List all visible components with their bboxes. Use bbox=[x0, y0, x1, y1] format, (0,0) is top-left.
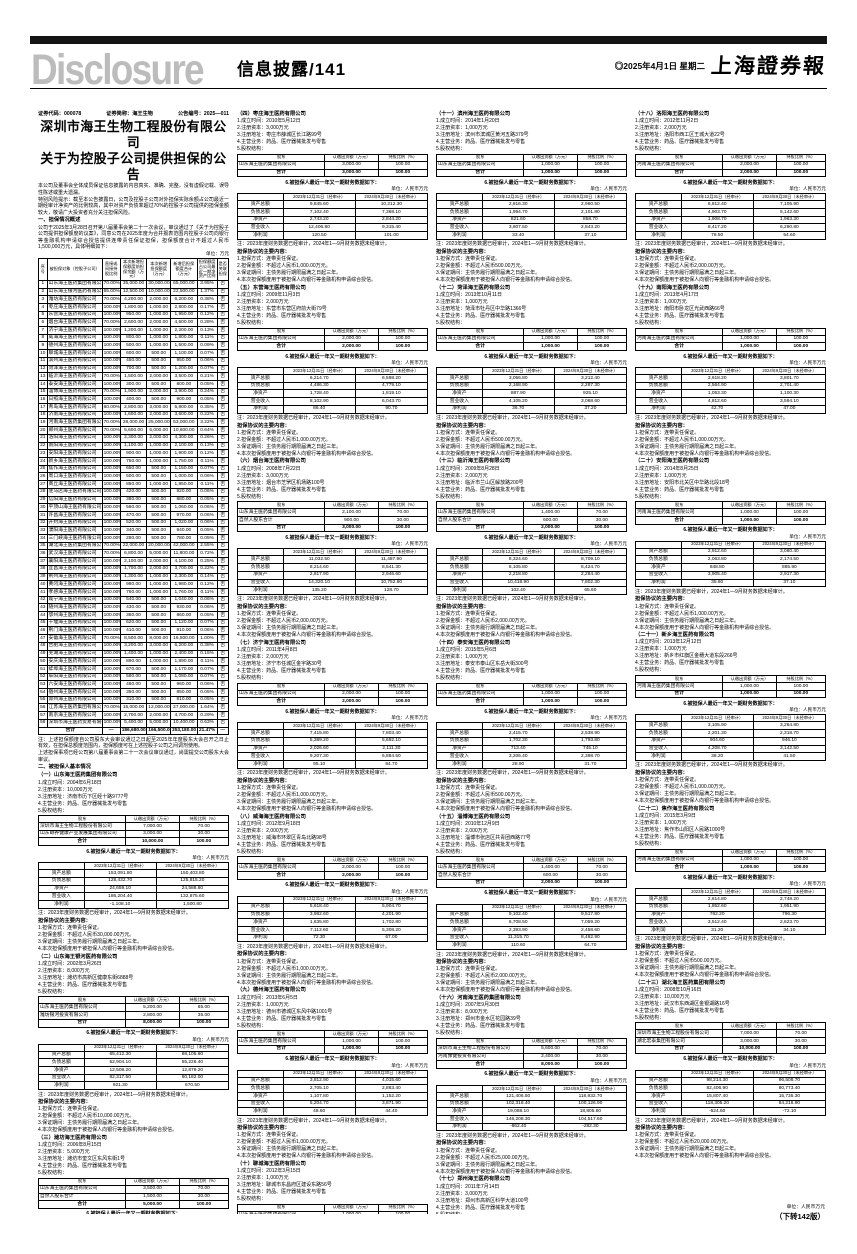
table-cell: 12,500.00 bbox=[120, 288, 147, 296]
table-cell: 280.00 bbox=[120, 535, 147, 543]
table-cell: 河南海王医药集团有限公司 bbox=[47, 419, 102, 427]
table-cell: 100.00% bbox=[102, 434, 120, 442]
subsidiary-section: （九）德州海王医药有限公司1.成立时间：2013年6月5日2.注册资本：1,00… bbox=[237, 987, 428, 1160]
table-cell: 山东海王医药集团有限公司 bbox=[238, 1038, 325, 1046]
table-header-row: 股东认缴出资额（万元）持股比例（%） bbox=[437, 154, 627, 161]
audit-note: 注：2023年度财务数据已经审计，2024年1—9月财务数据未经审计。 bbox=[436, 952, 627, 959]
table-cell: 资产总额 bbox=[39, 870, 85, 878]
table-cell: 100.00% bbox=[102, 573, 120, 581]
table-header-row: 股东认缴出资额（万元）持股比例（%） bbox=[238, 683, 428, 690]
table-cell: 100.00% bbox=[102, 596, 120, 604]
table-cell: 100.00 bbox=[776, 856, 825, 864]
subsidiary-name-heading: （二十）安阳海王医药有限公司 bbox=[635, 458, 826, 465]
table-cell: 9 bbox=[39, 342, 48, 350]
table-total-row: 合计8,000.00100.00 bbox=[39, 1019, 229, 1027]
table-cell: 净资产 bbox=[39, 885, 85, 893]
table-cell: 6,200.00 bbox=[171, 642, 198, 650]
table-cell: 德州海王医药有限公司 bbox=[47, 342, 102, 350]
table-cell: 湖北海王医药集团有限公司 bbox=[47, 542, 102, 550]
table-header-cell: 股东 bbox=[636, 502, 723, 509]
table-cell: 15,807.40 bbox=[681, 1092, 753, 1100]
table-cell: 90.70 bbox=[355, 405, 427, 413]
table-cell: 5,000.00 bbox=[147, 719, 171, 727]
page-footer: 单位：人民币万元 （下转142版） bbox=[771, 1203, 825, 1222]
table-header-cell: 2023年12月31日（经审计） bbox=[482, 1085, 554, 1092]
table-cell: 净利润 bbox=[636, 753, 682, 761]
table-cell: 2,000.00 bbox=[147, 319, 171, 327]
table-header-cell: 认缴出资额（万元） bbox=[723, 502, 776, 509]
subsidiary-section: （十七）郑州海王医药有限公司1.成立时间：2011年7月14日2.注册资本：3,… bbox=[436, 1176, 627, 1214]
table-cell: 100.00 bbox=[577, 169, 626, 177]
table-cell: 2,817.90 bbox=[283, 571, 355, 579]
table-row: 潍坊银河投资有限公司2,800.0035.00 bbox=[39, 1012, 229, 1020]
table-cell: 350.00 bbox=[120, 689, 147, 697]
table-row: 山东海王医药集团有限公司2,000.00100.00 bbox=[238, 864, 428, 872]
table-header-cell: 股东 bbox=[238, 857, 325, 864]
table-cell: 净资产 bbox=[636, 216, 682, 224]
table-total-row: 合计2,000.00100.00 bbox=[437, 879, 627, 887]
table-cell: 2,946.60 bbox=[355, 571, 427, 579]
table-cell: 128.70 bbox=[355, 587, 427, 595]
table-cell: 353,180.00 bbox=[171, 727, 198, 735]
table-cell: 8,000.00 bbox=[126, 1019, 179, 1027]
table-cell: 荆门海王医药有限公司 bbox=[47, 627, 102, 635]
table-cell: 100.00 bbox=[378, 1211, 427, 1214]
table-cell: 净利润 bbox=[437, 232, 483, 240]
table-row: 营业收入3,905.402,917.30 bbox=[636, 571, 826, 579]
table-row: 净资产2,026.602,111.30 bbox=[238, 745, 428, 753]
table-cell: 37.10 bbox=[753, 579, 825, 587]
table-cell: 24 bbox=[39, 457, 48, 465]
table-cell: 资产总额 bbox=[437, 556, 483, 564]
subsidiary-info-line: 2.注册资本：2,000万元 bbox=[237, 828, 428, 835]
table-cell: 980.00 bbox=[120, 581, 147, 589]
table-header-cell: 2023年12月31日（经审计） bbox=[482, 549, 554, 556]
table-cell: 威海海王医药有限公司 bbox=[47, 334, 102, 342]
table-header-cell: 认缴出资额（万元） bbox=[524, 328, 577, 335]
subsidiary-info-line: 3.注册地址：菏泽市牡丹区中华路1366号 bbox=[436, 306, 627, 313]
table-cell: 3,060.40 bbox=[753, 548, 825, 556]
table-cell: 7,803.40 bbox=[355, 730, 427, 738]
subsidiary-name-heading: （九）德州海王医药有限公司 bbox=[237, 987, 428, 994]
table-header-cell: 2024年9月30日（未经审计） bbox=[156, 1044, 228, 1051]
table-cell: — bbox=[102, 727, 120, 735]
table-header-cell: 股东 bbox=[39, 1178, 126, 1185]
table-cell: 资产总额 bbox=[636, 722, 682, 730]
table-header-cell: 股东 bbox=[636, 675, 723, 682]
table-cell: 3,000.00 bbox=[147, 404, 171, 412]
table-cell: 2,917.30 bbox=[753, 571, 825, 579]
table-cell: 100.00% bbox=[102, 604, 120, 612]
table-header-cell: 2023年12月31日（经审计） bbox=[482, 723, 554, 730]
subsidiary-info-line: 2.注册资本：10,000万元 bbox=[38, 787, 229, 794]
table-cell: 0.05% bbox=[197, 396, 217, 404]
table-cell: 1,000.00 bbox=[147, 573, 171, 581]
table-cell: 310.00 bbox=[120, 696, 147, 704]
table-cell: 8,324.60 bbox=[482, 556, 554, 564]
table-cell: 84.70 bbox=[355, 760, 427, 768]
table-cell: 潍坊银河投资有限公司 bbox=[39, 1012, 126, 1020]
subsidiary-section: （十二）菏泽海王医药有限公司1.成立时间：2013年10月11日2.注册资本：1… bbox=[436, 285, 627, 458]
table-row: 净利润33.4037.10 bbox=[437, 232, 627, 240]
table-cell: 8,102.90 bbox=[283, 398, 355, 406]
table-cell: 资产总额 bbox=[238, 375, 284, 383]
table-cell: 6 bbox=[39, 319, 48, 327]
table-cell: 合计 bbox=[437, 698, 524, 706]
guarantee-term-line: 2.担保金额：不超过人民币10,000.00万元。 bbox=[38, 1113, 229, 1120]
table-cell: 28,000.00 bbox=[120, 419, 147, 427]
table-cell: 净资产 bbox=[437, 1108, 483, 1116]
table-row: 资产总额9,845.6010,212.30 bbox=[238, 201, 428, 209]
table-cell: 8,709.10 bbox=[554, 556, 626, 564]
table-cell: 100.00% bbox=[102, 396, 120, 404]
table-cell: 否 bbox=[217, 712, 228, 720]
unit-label: 单位：人民币万元 bbox=[38, 855, 229, 861]
table-cell: 100.00% bbox=[102, 642, 120, 650]
table-cell: 100.00 bbox=[776, 343, 825, 351]
table-cell: 襄阳海王医药有限公司 bbox=[47, 558, 102, 566]
table-cell: 营业收入 bbox=[636, 1100, 682, 1108]
guarantee-term-line: 4.本次担保额度用于被担保人向银行等金融机构申请综合授信。 bbox=[237, 451, 428, 458]
guarantee-term-line: 3.保证期间：主债务履行期限届满之日起三年。 bbox=[635, 791, 826, 798]
financials-intro: 6.被担保人最近一年又一期财务数据如下： bbox=[436, 708, 627, 715]
subsidiary-info-line: 1.成立时间：2006年8月15日 bbox=[38, 1142, 229, 1149]
table-cell: 7,368.10 bbox=[355, 209, 427, 217]
table-cell: 否 bbox=[217, 327, 228, 335]
table-cell: 19,088.10 bbox=[482, 1108, 554, 1116]
table-cell: 4,100.00 bbox=[171, 558, 198, 566]
table-cell: 资产总额 bbox=[238, 730, 284, 738]
table-row: 55滁州海王医药有限公司100.00%310.00500.00810.000.0… bbox=[39, 696, 229, 704]
table-row: 34三门峡海王医药有限公司100.00%280.00500.00780.000.… bbox=[39, 535, 229, 543]
table-cell: 620.00 bbox=[120, 619, 147, 627]
table-cell: 100.00% bbox=[102, 588, 120, 596]
shareholder-table: 股东认缴出资额（万元）持股比例（%）山东海王医药集团有限公司1,000.0010… bbox=[237, 1030, 428, 1053]
table-header-row: 2023年12月31日（经审计）2024年9月30日（未经审计） bbox=[636, 1070, 826, 1077]
table-cell: 2,844.20 bbox=[355, 216, 427, 224]
table-cell: 100.00% bbox=[102, 681, 120, 689]
table-header-cell: 股东 bbox=[39, 997, 126, 1004]
table-row: 负债总额2,705.102,863.40 bbox=[238, 1085, 428, 1093]
table-cell: 0.29% bbox=[197, 712, 217, 720]
subsidiary-info-line: 1.成立时间：2012年9月18日 bbox=[237, 821, 428, 828]
table-cell: 1,852.60 bbox=[681, 903, 753, 911]
table-cell: 周口海王医药有限公司 bbox=[47, 473, 102, 481]
table-row: 31许昌海王医药有限公司100.00%470.00500.00970.000.0… bbox=[39, 511, 229, 519]
table-header-cell bbox=[636, 541, 682, 548]
shareholder-table: 股东认缴出资额（万元）持股比例（%）山东海王医药集团有限公司2,000.0010… bbox=[237, 328, 428, 351]
table-cell: 8,417.20 bbox=[681, 224, 753, 232]
table-cell: 31.20 bbox=[681, 926, 753, 934]
table-cell: 安徽海王医药有限公司 bbox=[47, 635, 102, 643]
subsidiary-info-line: 4.主营业务：药品、医疗器械批发与零售 bbox=[436, 139, 627, 146]
table-header-cell: 担保额度占公司最近一期净资产比例 bbox=[197, 259, 217, 281]
table-cell: 净资产 bbox=[636, 390, 682, 398]
table-cell: 20,000.00 bbox=[147, 542, 171, 550]
table-row: 净资产15,807.4015,735.30 bbox=[636, 1092, 826, 1100]
table-cell: 33.40 bbox=[482, 232, 554, 240]
table-cell: 0.09% bbox=[197, 342, 217, 350]
table-row: 净资产848.80885.90 bbox=[636, 564, 826, 572]
table-cell: 36 bbox=[39, 550, 48, 558]
table-cell: 64.70 bbox=[554, 942, 626, 950]
table-cell: 5,600.00 bbox=[120, 427, 147, 435]
table-cell: 24,659.10 bbox=[84, 885, 156, 893]
audit-note: 注：2023年度财务数据已经审计，2024年1—9月财务数据未经审计。 bbox=[38, 910, 229, 917]
table-cell: 100.00 bbox=[776, 1045, 825, 1053]
guarantee-term-line: 1.担保方式：连带责任保证。 bbox=[635, 777, 826, 784]
table-cell: 3,871.90 bbox=[355, 1100, 427, 1108]
table-cell: 8,214.60 bbox=[283, 564, 355, 572]
table-cell: 合计 bbox=[636, 169, 723, 177]
intro-paragraph: 特别风险提示：截至本公告披露日，公司及控股子公司对外担保实际余额占公司最近一期经… bbox=[38, 197, 229, 217]
shareholder-table: 股东认缴出资额（万元）持股比例（%）山东海王医药集团有限公司3,500.0070… bbox=[38, 1178, 229, 1209]
table-cell: 1,800.00 bbox=[120, 303, 147, 311]
audit-note: 注：2023年度财务数据已经审计，2024年1—9月财务数据未经审计。 bbox=[38, 1092, 229, 1099]
subsidiary-info-line: 1.成立时间：2012年11月2日 bbox=[635, 118, 826, 125]
table-cell: 蚌埠海王医药有限公司 bbox=[47, 665, 102, 673]
table-row: 36武汉海王医药有限公司70.00%6,800.005,000.0011,800… bbox=[39, 550, 229, 558]
table-cell: 1,635.80 bbox=[283, 919, 355, 927]
table-row: 24新乡海王医药有限公司100.00%750.001,000.001,750.0… bbox=[39, 457, 229, 465]
guarantee-term-line: 3.保证期间：主债务履行期限届满之日起三年。 bbox=[38, 939, 229, 946]
subsidiary-name-heading: （二十二）焦作海王医药有限公司 bbox=[635, 806, 826, 813]
table-cell: 0.22% bbox=[197, 565, 217, 573]
terms-heading: 担保协议的主要内容： bbox=[436, 959, 627, 966]
table-cell: 鄂州海王医药有限公司 bbox=[47, 612, 102, 620]
table-row: 资产总额98,214.3096,508.70 bbox=[636, 1077, 826, 1085]
table-row: 净利润28.9031.70 bbox=[437, 760, 627, 768]
table-cell: 4,812.60 bbox=[681, 398, 753, 406]
table-cell: 29 bbox=[39, 496, 48, 504]
unit-label: 单位：人民币万元 bbox=[436, 186, 627, 192]
table-cell: 净资产 bbox=[238, 1092, 284, 1100]
table-cell: 5,904.70 bbox=[355, 903, 427, 911]
table-cell: 否 bbox=[217, 658, 228, 666]
table-header-cell: 被担保对象（控股子公司） bbox=[47, 259, 102, 281]
table-header-cell: 股东 bbox=[437, 154, 524, 161]
table-cell: 27 bbox=[39, 481, 48, 489]
subsidiary-info-line: 2.注册资本：1,000万元 bbox=[436, 125, 627, 132]
table-cell: 22,000.00 bbox=[120, 542, 147, 550]
table-header-cell bbox=[437, 194, 483, 201]
guarantee-term-line: 3.保证期间：主债务履行期限届满之日起三年。 bbox=[635, 965, 826, 972]
shareholder-table: 股东认缴出资额（万元）持股比例（%）山东海王医药集团有限公司2,000.0010… bbox=[237, 856, 428, 879]
table-cell: 河南海王医药集团有限公司 bbox=[636, 161, 723, 169]
financial-table: 2023年12月31日（经审计）2024年9月30日（未经审计）资产总额153,… bbox=[38, 862, 229, 909]
table-header-cell bbox=[238, 368, 284, 375]
subsidiary-info-line: 2.注册资本：3,000万元 bbox=[237, 473, 428, 480]
table-cell: 70.00% bbox=[102, 635, 120, 643]
table-row: 净资产887.90925.10 bbox=[437, 390, 627, 398]
table-cell: 100.00 bbox=[179, 1201, 228, 1209]
table-header-cell: 持股比例（%） bbox=[776, 675, 825, 682]
table-total-row: 合计3,000.00100.00 bbox=[238, 169, 428, 177]
guarantee-term-line: 1.担保方式：连带责任保证。 bbox=[635, 604, 826, 611]
table-cell: 否 bbox=[217, 519, 228, 527]
table-row: 净资产2,743.202,844.20 bbox=[238, 216, 428, 224]
table-cell: 0.13% bbox=[197, 327, 217, 335]
shareholder-table: 股东认缴出资额（万元）持股比例（%）河南海王医药集团有限公司1,000.0010… bbox=[635, 501, 826, 524]
subsidiary-info-line: 4.主营业务：药品、医疗器械批发与零售 bbox=[38, 801, 229, 808]
table-header-cell: 是否关联担保 bbox=[217, 259, 228, 281]
announcement-code-line: 证券代码：000078 证券简称：海王生物 公告编号：2025—011 bbox=[38, 110, 229, 117]
table-cell: 菏泽海王医药有限公司 bbox=[47, 365, 102, 373]
column-1: 证券代码：000078 证券简称：海王生物 公告编号：2025—011 深圳市海… bbox=[38, 110, 229, 1214]
table-cell: 资产总额 bbox=[437, 730, 483, 738]
table-row: 资产总额2,415.702,538.90 bbox=[437, 730, 627, 738]
guarantee-term-line: 2.担保金额：不超过人民币1,000.00万元。 bbox=[635, 437, 826, 444]
table-cell: 100.00% bbox=[102, 327, 120, 335]
table-header-cell: 持股比例（%） bbox=[179, 997, 228, 1004]
table-row: 52阜阳海王医药有限公司100.00%580.00500.001,080.000… bbox=[39, 673, 229, 681]
table-cell: 300.00 bbox=[120, 380, 147, 388]
subsidiaries-heading: 二、被担保人基本情况 bbox=[38, 764, 229, 771]
table-row: 42咸宁海王医药有限公司100.00%540.00500.001,040.000… bbox=[39, 596, 229, 604]
table-header-row: 2023年12月31日（经审计）2024年9月30日（未经审计） bbox=[636, 889, 826, 896]
table-cell: 营业收入 bbox=[437, 398, 483, 406]
subsidiary-info-line: 3.注册地址：武汉市东西湖区金银湖路16号 bbox=[635, 1001, 826, 1008]
table-cell: 否 bbox=[217, 673, 228, 681]
table-row: 净利润-1,108.101,500.80 bbox=[39, 901, 229, 909]
subsidiary-name-heading: （十三）临沂海王医药有限公司 bbox=[436, 458, 627, 465]
table-cell: 1,000.00 bbox=[147, 457, 171, 465]
subsidiary-info-line: 5.股权结构： bbox=[436, 675, 627, 682]
table-cell: 否 bbox=[217, 473, 228, 481]
table-cell: 净利润 bbox=[636, 405, 682, 413]
subsidiary-info-line: 2.注册资本：1,000万元 bbox=[635, 299, 826, 306]
table-cell: 合计 bbox=[437, 1061, 524, 1069]
table-cell: 858.70 bbox=[554, 216, 626, 224]
unit-label: 单位：人民币万元 bbox=[436, 541, 627, 547]
table-cell: 1,000.00 bbox=[723, 690, 776, 698]
table-cell: 500.00 bbox=[147, 627, 171, 635]
table-cell: 0.28% bbox=[197, 319, 217, 327]
table-cell: 净资产 bbox=[437, 745, 483, 753]
table-cell: 21 bbox=[39, 434, 48, 442]
table-cell: 净利润 bbox=[238, 934, 284, 942]
table-cell: 2,458.60 bbox=[554, 926, 626, 934]
table-header-cell: 2023年12月31日（经审计） bbox=[283, 1070, 355, 1077]
table-cell: 0.21% bbox=[197, 373, 217, 381]
table-cell: 100.00 bbox=[378, 690, 427, 698]
table-cell: 0.06% bbox=[197, 519, 217, 527]
table-cell: 否 bbox=[217, 681, 228, 689]
subsidiary-info-line: 1.成立时间：2013年10月11日 bbox=[436, 292, 627, 299]
table-cell: 100.00% bbox=[102, 712, 120, 720]
table-cell: 30.00 bbox=[179, 830, 228, 838]
guarantee-term-line: 3.保证期间：主债务履行期限届满之日起三年。 bbox=[436, 799, 627, 806]
table-row: 33濮阳海王医药有限公司100.00%340.00500.00840.000.0… bbox=[39, 527, 229, 535]
table-header-cell: 2023年12月31日（经审计） bbox=[84, 1044, 156, 1051]
table-header-cell: 认缴出资额（万元） bbox=[325, 1031, 378, 1038]
table-header-cell: 2023年12月31日（经审计） bbox=[283, 896, 355, 903]
audit-note: 注：2023年度财务数据已经审计，2024年1—9月财务数据未经审计。 bbox=[237, 596, 428, 603]
guarantee-term-line: 3.保证期间：主债务履行期限届满之日起三年。 bbox=[237, 973, 428, 980]
table-cell: 900.00 bbox=[325, 517, 378, 525]
table-row: 负债总额1,994.702,101.80 bbox=[437, 209, 627, 217]
table-cell: 500.00 bbox=[147, 673, 171, 681]
table-cell: 78.50 bbox=[681, 232, 753, 240]
table-cell: 850.00 bbox=[120, 481, 147, 489]
table-header-row: 2023年12月31日（经审计）2024年9月30日（未经审计） bbox=[238, 549, 428, 556]
table-cell: 开封海王医药有限公司 bbox=[47, 519, 102, 527]
table-header-cell: 股东 bbox=[39, 816, 126, 823]
subsidiary-info-line: 3.注册地址：安阳市北关区中华路北段18号 bbox=[635, 480, 826, 487]
table-cell: 净资产 bbox=[437, 926, 483, 934]
table-header-cell: 2024年9月30日（未经审计） bbox=[753, 541, 825, 548]
table-cell: 904.60 bbox=[681, 737, 753, 745]
table-cell: 负债总额 bbox=[238, 911, 284, 919]
table-cell: 否 bbox=[217, 350, 228, 358]
guarantee-term-line: 3.保证期间：主债务履行期限届满之日起三年。 bbox=[635, 1146, 826, 1153]
table-cell: 东营海王医药有限公司 bbox=[47, 311, 102, 319]
financials-intro: 6.被担保人最近一年又一期财务数据如下： bbox=[635, 353, 826, 360]
subsidiary-name-heading: （一）山东海王医药集团有限公司 bbox=[38, 772, 229, 779]
table-cell: 临沂海王医药有限公司 bbox=[47, 373, 102, 381]
table-cell: 否 bbox=[217, 373, 228, 381]
terms-heading: 担保协议的主要内容： bbox=[38, 918, 229, 925]
table-cell: 负债总额 bbox=[636, 382, 682, 390]
terms-heading: 担保协议的主要内容： bbox=[635, 1125, 826, 1132]
table-cell: 0.22% bbox=[197, 411, 217, 419]
table-cell: 70.00 bbox=[577, 1045, 626, 1053]
stock-code: 证券代码：000078 bbox=[38, 110, 81, 117]
table-cell: 负债总额 bbox=[437, 1100, 483, 1108]
table-row: 净利润95.1084.70 bbox=[238, 760, 428, 768]
table-cell: 3,068.60 bbox=[554, 398, 626, 406]
financial-table: 2023年12月31日（经审计）2024年9月30日（未经审计）资产总额9,84… bbox=[237, 193, 428, 240]
table-cell: 146,208.30 bbox=[482, 1116, 554, 1124]
table-cell: 6,800.00 bbox=[120, 550, 147, 558]
table-cell: 3,600.00 bbox=[171, 411, 198, 419]
table-header-cell: 股东 bbox=[437, 1038, 524, 1045]
table-cell: 10,000.00 bbox=[126, 838, 179, 846]
table-cell: 135.20 bbox=[283, 587, 355, 595]
table-cell: 910.00 bbox=[171, 627, 198, 635]
table-cell: 合计 bbox=[39, 1019, 126, 1027]
table-row: 负债总额5,389.205,692.10 bbox=[238, 737, 428, 745]
financial-table: 2023年12月31日（经审计）2024年9月30日（未经审计）资产总额5,61… bbox=[237, 896, 428, 943]
table-cell: 500.00 bbox=[147, 357, 171, 365]
table-cell: 850.00 bbox=[171, 689, 198, 697]
table-row: 资产总额6,214.706,598.20 bbox=[238, 375, 428, 383]
table-header-row: 2023年12月31日（经审计）2024年9月30日（未经审计） bbox=[437, 194, 627, 201]
table-cell: 100.00 bbox=[378, 335, 427, 343]
subsidiary-info-line: 5.股权结构： bbox=[436, 849, 627, 856]
guarantee-term-line: 1.担保方式：连带责任保证。 bbox=[38, 925, 229, 932]
table-cell: 25 bbox=[39, 465, 48, 473]
table-cell: 100.00% bbox=[102, 565, 120, 573]
table-cell: 2,600.00 bbox=[120, 319, 147, 327]
table-cell: 芜湖海王医药有限公司 bbox=[47, 650, 102, 658]
subsidiary-info-line: 3.注册地址：临沂市兰山区解放路200号 bbox=[436, 480, 627, 487]
table-cell: 资产总额 bbox=[636, 548, 682, 556]
guarantee-term-line: 2.担保金额：不超过人民币2,000.00万元。 bbox=[237, 618, 428, 625]
table-row: 净资产2,393.902,458.60 bbox=[437, 926, 627, 934]
table-header-cell: 认缴出资额（万元） bbox=[524, 683, 577, 690]
table-cell: 30.00 bbox=[577, 517, 626, 525]
table-cell: 100.00 bbox=[378, 524, 427, 532]
table-header-row: 2023年12月31日（经审计）2024年9月30日（未经审计） bbox=[238, 896, 428, 903]
subsidiary-info-line: 5.股权结构： bbox=[38, 1170, 229, 1177]
audit-note: 注：2023年度财务数据已经审计，2024年1—9月财务数据未经审计。 bbox=[436, 1133, 627, 1140]
table-header-cell bbox=[636, 194, 682, 201]
table-cell: 153,091.80 bbox=[84, 870, 156, 878]
table-cell: 52 bbox=[39, 673, 48, 681]
subsidiary-section: （二）山东海王银河医药有限公司1.成立时间：2002年3月26日2.注册资本：8… bbox=[38, 954, 229, 1134]
table-row: 湖北宏泰集团有限公司3,000.0030.00 bbox=[636, 1038, 826, 1046]
